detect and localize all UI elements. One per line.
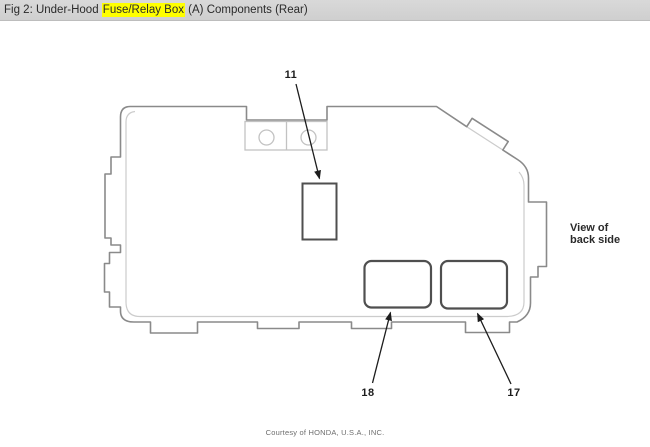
callout-label-11: 11 — [281, 69, 301, 81]
component-18-relay — [365, 261, 432, 308]
leader-arrow-17 — [478, 314, 512, 385]
view-of-back-side-note: View of back side — [570, 223, 620, 246]
component-11-relay — [303, 184, 337, 240]
diagonal-edge-under-tab — [467, 127, 503, 150]
figure-title-suffix: (A) Components (Rear) — [185, 4, 308, 16]
mounting-bracket — [245, 122, 327, 151]
figure-title-prefix: Fig 2: Under-Hood — [4, 4, 102, 16]
bolt-hole-left-icon — [259, 130, 274, 145]
fuse-box-diagram — [0, 0, 650, 447]
leader-arrow-18 — [373, 313, 391, 384]
component-17-relay — [441, 261, 507, 309]
figure-title-highlight: Fuse/Relay Box — [102, 3, 185, 17]
courtesy-credit: Courtesy of HONDA, U.S.A., INC. — [0, 428, 650, 437]
callout-label-17: 17 — [503, 387, 525, 399]
figure-title-bar: Fig 2: Under-Hood Fuse/Relay Box (A) Com… — [0, 0, 650, 21]
leader-arrow-11 — [296, 84, 320, 179]
callout-label-18: 18 — [357, 387, 379, 399]
